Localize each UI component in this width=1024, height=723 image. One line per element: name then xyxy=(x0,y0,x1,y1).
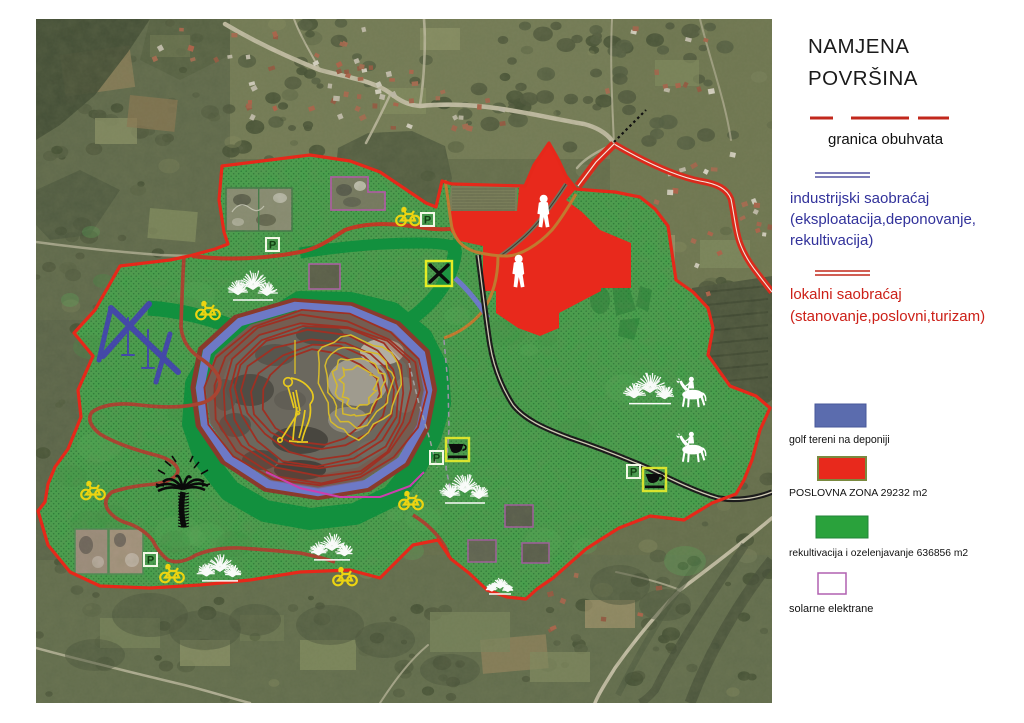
svg-text:POSLOVNA ZONA 29232 m2: POSLOVNA ZONA 29232 m2 xyxy=(789,487,927,499)
svg-text:industrijski saobraćaj: industrijski saobraćaj xyxy=(790,190,929,207)
svg-text:solarne elektrane: solarne elektrane xyxy=(789,603,873,615)
svg-text:rekultivacija): rekultivacija) xyxy=(790,232,873,249)
svg-text:(eksploatacija,deponovanje,: (eksploatacija,deponovanje, xyxy=(790,211,976,228)
svg-text:P: P xyxy=(424,215,431,227)
svg-text:P: P xyxy=(269,240,276,252)
svg-text:(stanovanje,poslovni,turizam): (stanovanje,poslovni,turizam) xyxy=(790,308,985,325)
svg-text:granica obuhvata: granica obuhvata xyxy=(828,131,944,148)
svg-text:NAMJENA: NAMJENA xyxy=(808,35,909,58)
svg-text:golf tereni na deponiji: golf tereni na deponiji xyxy=(789,434,890,446)
svg-text:POVRŠINA: POVRŠINA xyxy=(808,67,918,90)
svg-text:lokalni saobraćaj: lokalni saobraćaj xyxy=(790,286,902,303)
svg-text:P: P xyxy=(433,453,440,465)
svg-text:rekultivacija i ozelenjavanje: rekultivacija i ozelenjavanje 636856 m2 xyxy=(789,548,968,559)
svg-text:P: P xyxy=(147,555,154,567)
svg-text:P: P xyxy=(630,467,637,479)
